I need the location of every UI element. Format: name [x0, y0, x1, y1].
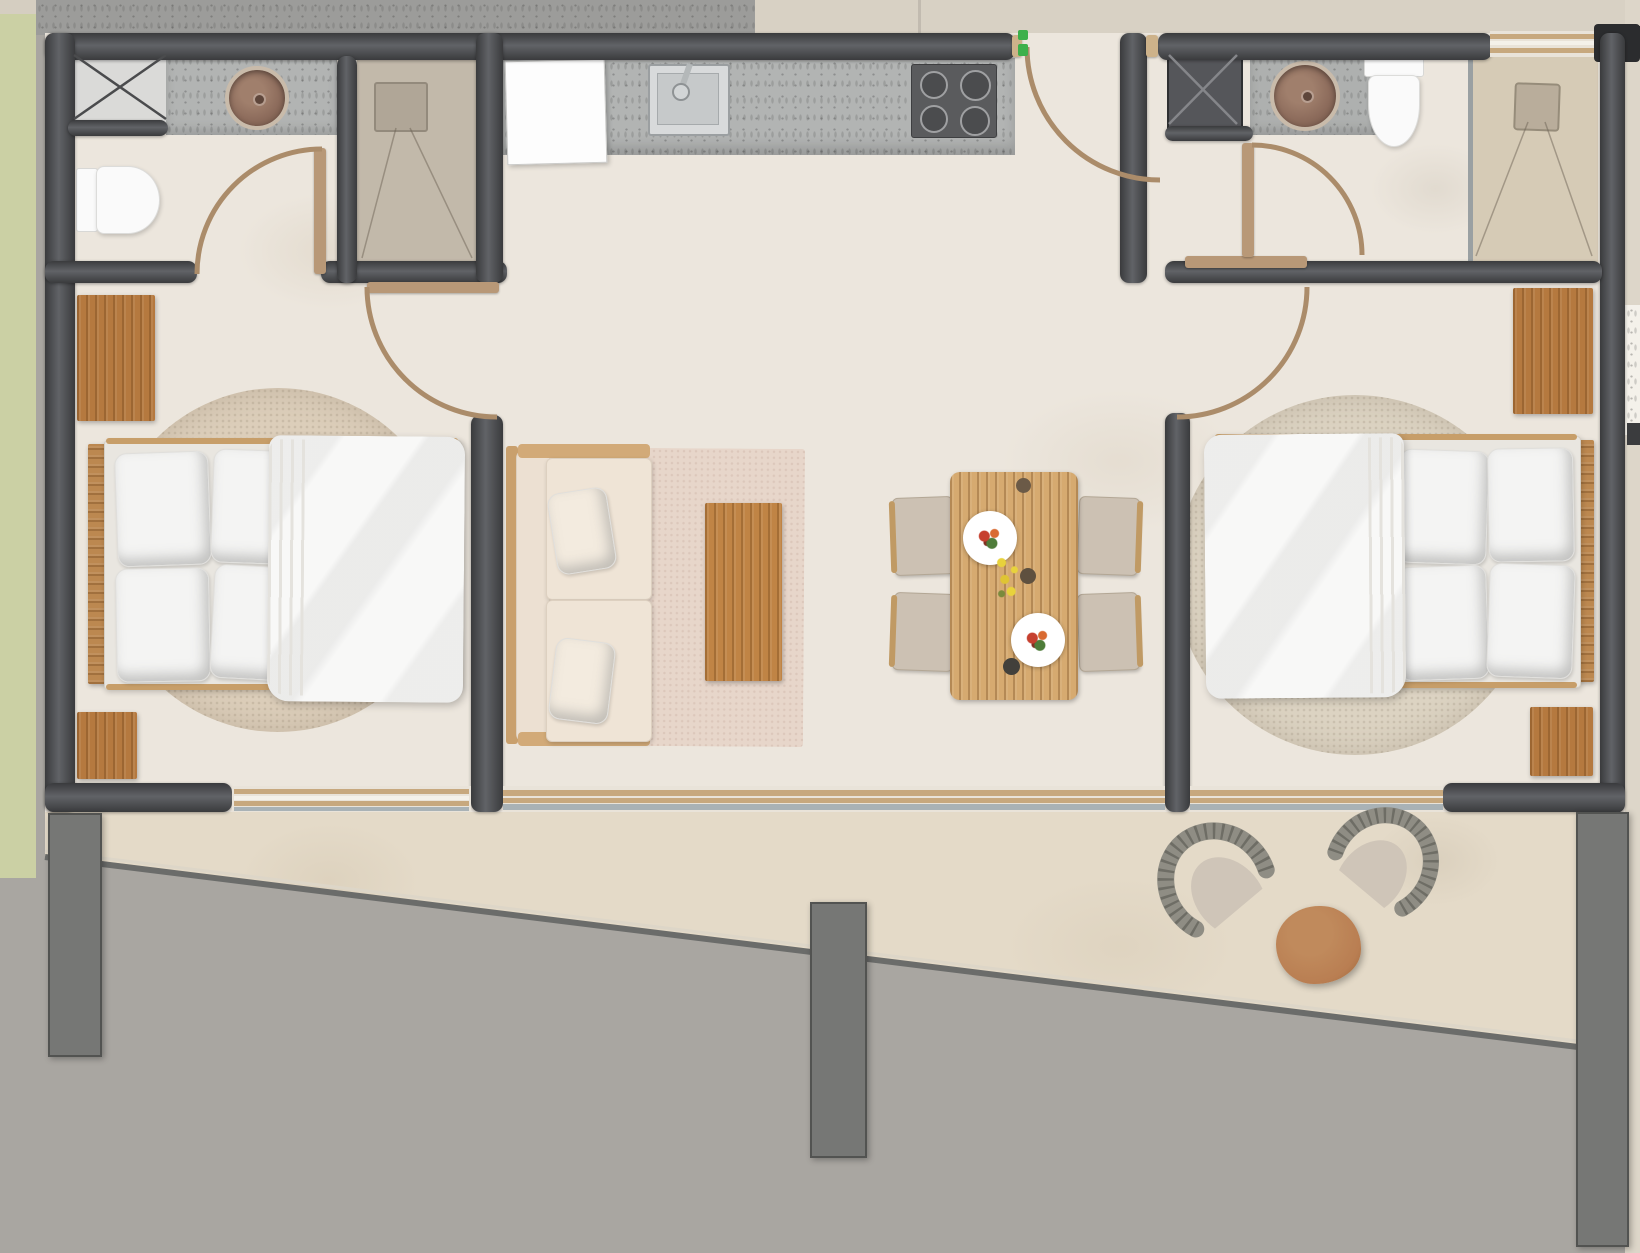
wall-bath-right-divider [1120, 33, 1147, 283]
food [1019, 621, 1057, 659]
wall-shaft-right-bottom [1165, 126, 1253, 141]
shower-left-drain [374, 82, 428, 132]
pillar-middle [810, 902, 867, 1158]
window-glass [234, 807, 469, 811]
burner-icon [920, 71, 948, 99]
dining-chair [892, 592, 956, 672]
sliding-door-living [503, 786, 1165, 812]
grass-strip [0, 14, 36, 878]
wall-bottom-right [1443, 783, 1625, 812]
bedroom-right-duvet [1204, 433, 1406, 699]
pillow [1396, 448, 1490, 565]
toilet-left-tank [76, 168, 98, 232]
wall-bottom-left [45, 783, 232, 812]
coffee-table [705, 503, 782, 681]
bedroom-left-nightstand [77, 712, 137, 779]
shaft-box-left [72, 53, 172, 125]
shower-right-glass [1468, 56, 1473, 263]
flowers [992, 553, 1024, 601]
bedroom-left-duvet [267, 435, 465, 703]
slider-rail [503, 798, 1165, 803]
bedroom-right-nightstand [1530, 707, 1593, 776]
basin-right [1270, 61, 1340, 131]
burner-icon [960, 70, 991, 101]
pillow [1396, 564, 1490, 681]
slider-glass [503, 804, 1165, 810]
burner-icon [920, 105, 948, 133]
duvet-ruffle [267, 439, 305, 695]
window-glass [234, 796, 469, 800]
top-concrete-band [36, 0, 755, 35]
right-window-strip [1625, 305, 1640, 435]
duvet-ruffle [1368, 437, 1406, 693]
chair-back [889, 501, 898, 573]
wall-right [1600, 33, 1625, 813]
wall-living-bedroom-right [1165, 413, 1190, 812]
entry-hinge-marker [1018, 30, 1028, 40]
door-leaf-bathroom-right [1242, 143, 1254, 257]
floor-plan [0, 0, 1640, 1253]
pillow [115, 567, 211, 683]
plate [1011, 613, 1065, 667]
window-top-right [1490, 31, 1596, 57]
shaft-box-right [1167, 53, 1243, 130]
wall-top-left [45, 33, 1015, 60]
shower-right-drain [1513, 82, 1561, 132]
food [971, 519, 1009, 557]
terrace-round-table [1276, 906, 1361, 984]
pillar-right [1576, 812, 1629, 1247]
top-beige-divider [918, 0, 921, 34]
cooktop [911, 64, 997, 138]
right-wall-block-mid [1627, 423, 1640, 445]
wall-left [45, 33, 75, 812]
entry-door-jamb-right [1146, 35, 1158, 57]
basin-left [225, 66, 289, 130]
wall-shaft-left-bottom [68, 120, 168, 136]
burner-icon [960, 106, 990, 136]
wall-interior-bath-left [45, 261, 197, 283]
toilet-right-tank [1364, 57, 1424, 77]
door-leaf-bedroom-left [367, 282, 499, 293]
sofa-throw-pillow [546, 486, 618, 576]
slider-glass [1190, 804, 1443, 810]
dining-chair [892, 496, 956, 576]
wall-top-right [1158, 33, 1492, 60]
bedroom-left-desk [77, 295, 155, 421]
slider-rail [1190, 790, 1443, 796]
sofa-throw-pillow [547, 637, 617, 726]
kitchen-sink-basin [657, 73, 719, 125]
window-rail [234, 801, 469, 806]
cup [1003, 658, 1020, 675]
top-beige-band [755, 0, 1640, 35]
wall-living-bedroom-left [471, 415, 503, 812]
pillow [1486, 563, 1576, 680]
sofa-arm-top [518, 444, 650, 458]
slider-rail [503, 790, 1165, 796]
window-bedroom-right [1190, 786, 1443, 812]
window-rail [234, 789, 469, 794]
toilet-left-bowl [96, 166, 160, 234]
wall-shower-left-frame [337, 56, 357, 283]
bedroom-right-desk [1513, 288, 1593, 414]
slider-rail [1190, 798, 1443, 803]
pillar-left [48, 813, 102, 1057]
dining-chair [1077, 592, 1141, 672]
fridge [505, 59, 608, 166]
entry-hinge-marker [1018, 44, 1028, 56]
pillow [1487, 447, 1575, 562]
door-leaf-bedroom-right [1185, 256, 1307, 268]
sofa-backrest [516, 450, 550, 742]
window-rail [1490, 34, 1596, 39]
dining-chair [1077, 496, 1141, 576]
window-rail [1490, 48, 1596, 53]
window-bedroom-left [232, 786, 471, 812]
wall-shower-right-frame [476, 33, 503, 283]
pillow [114, 450, 212, 567]
chair-back [889, 595, 898, 667]
door-leaf-bathroom-left [314, 148, 326, 274]
cup [1016, 478, 1031, 493]
window-glass [1490, 41, 1596, 45]
